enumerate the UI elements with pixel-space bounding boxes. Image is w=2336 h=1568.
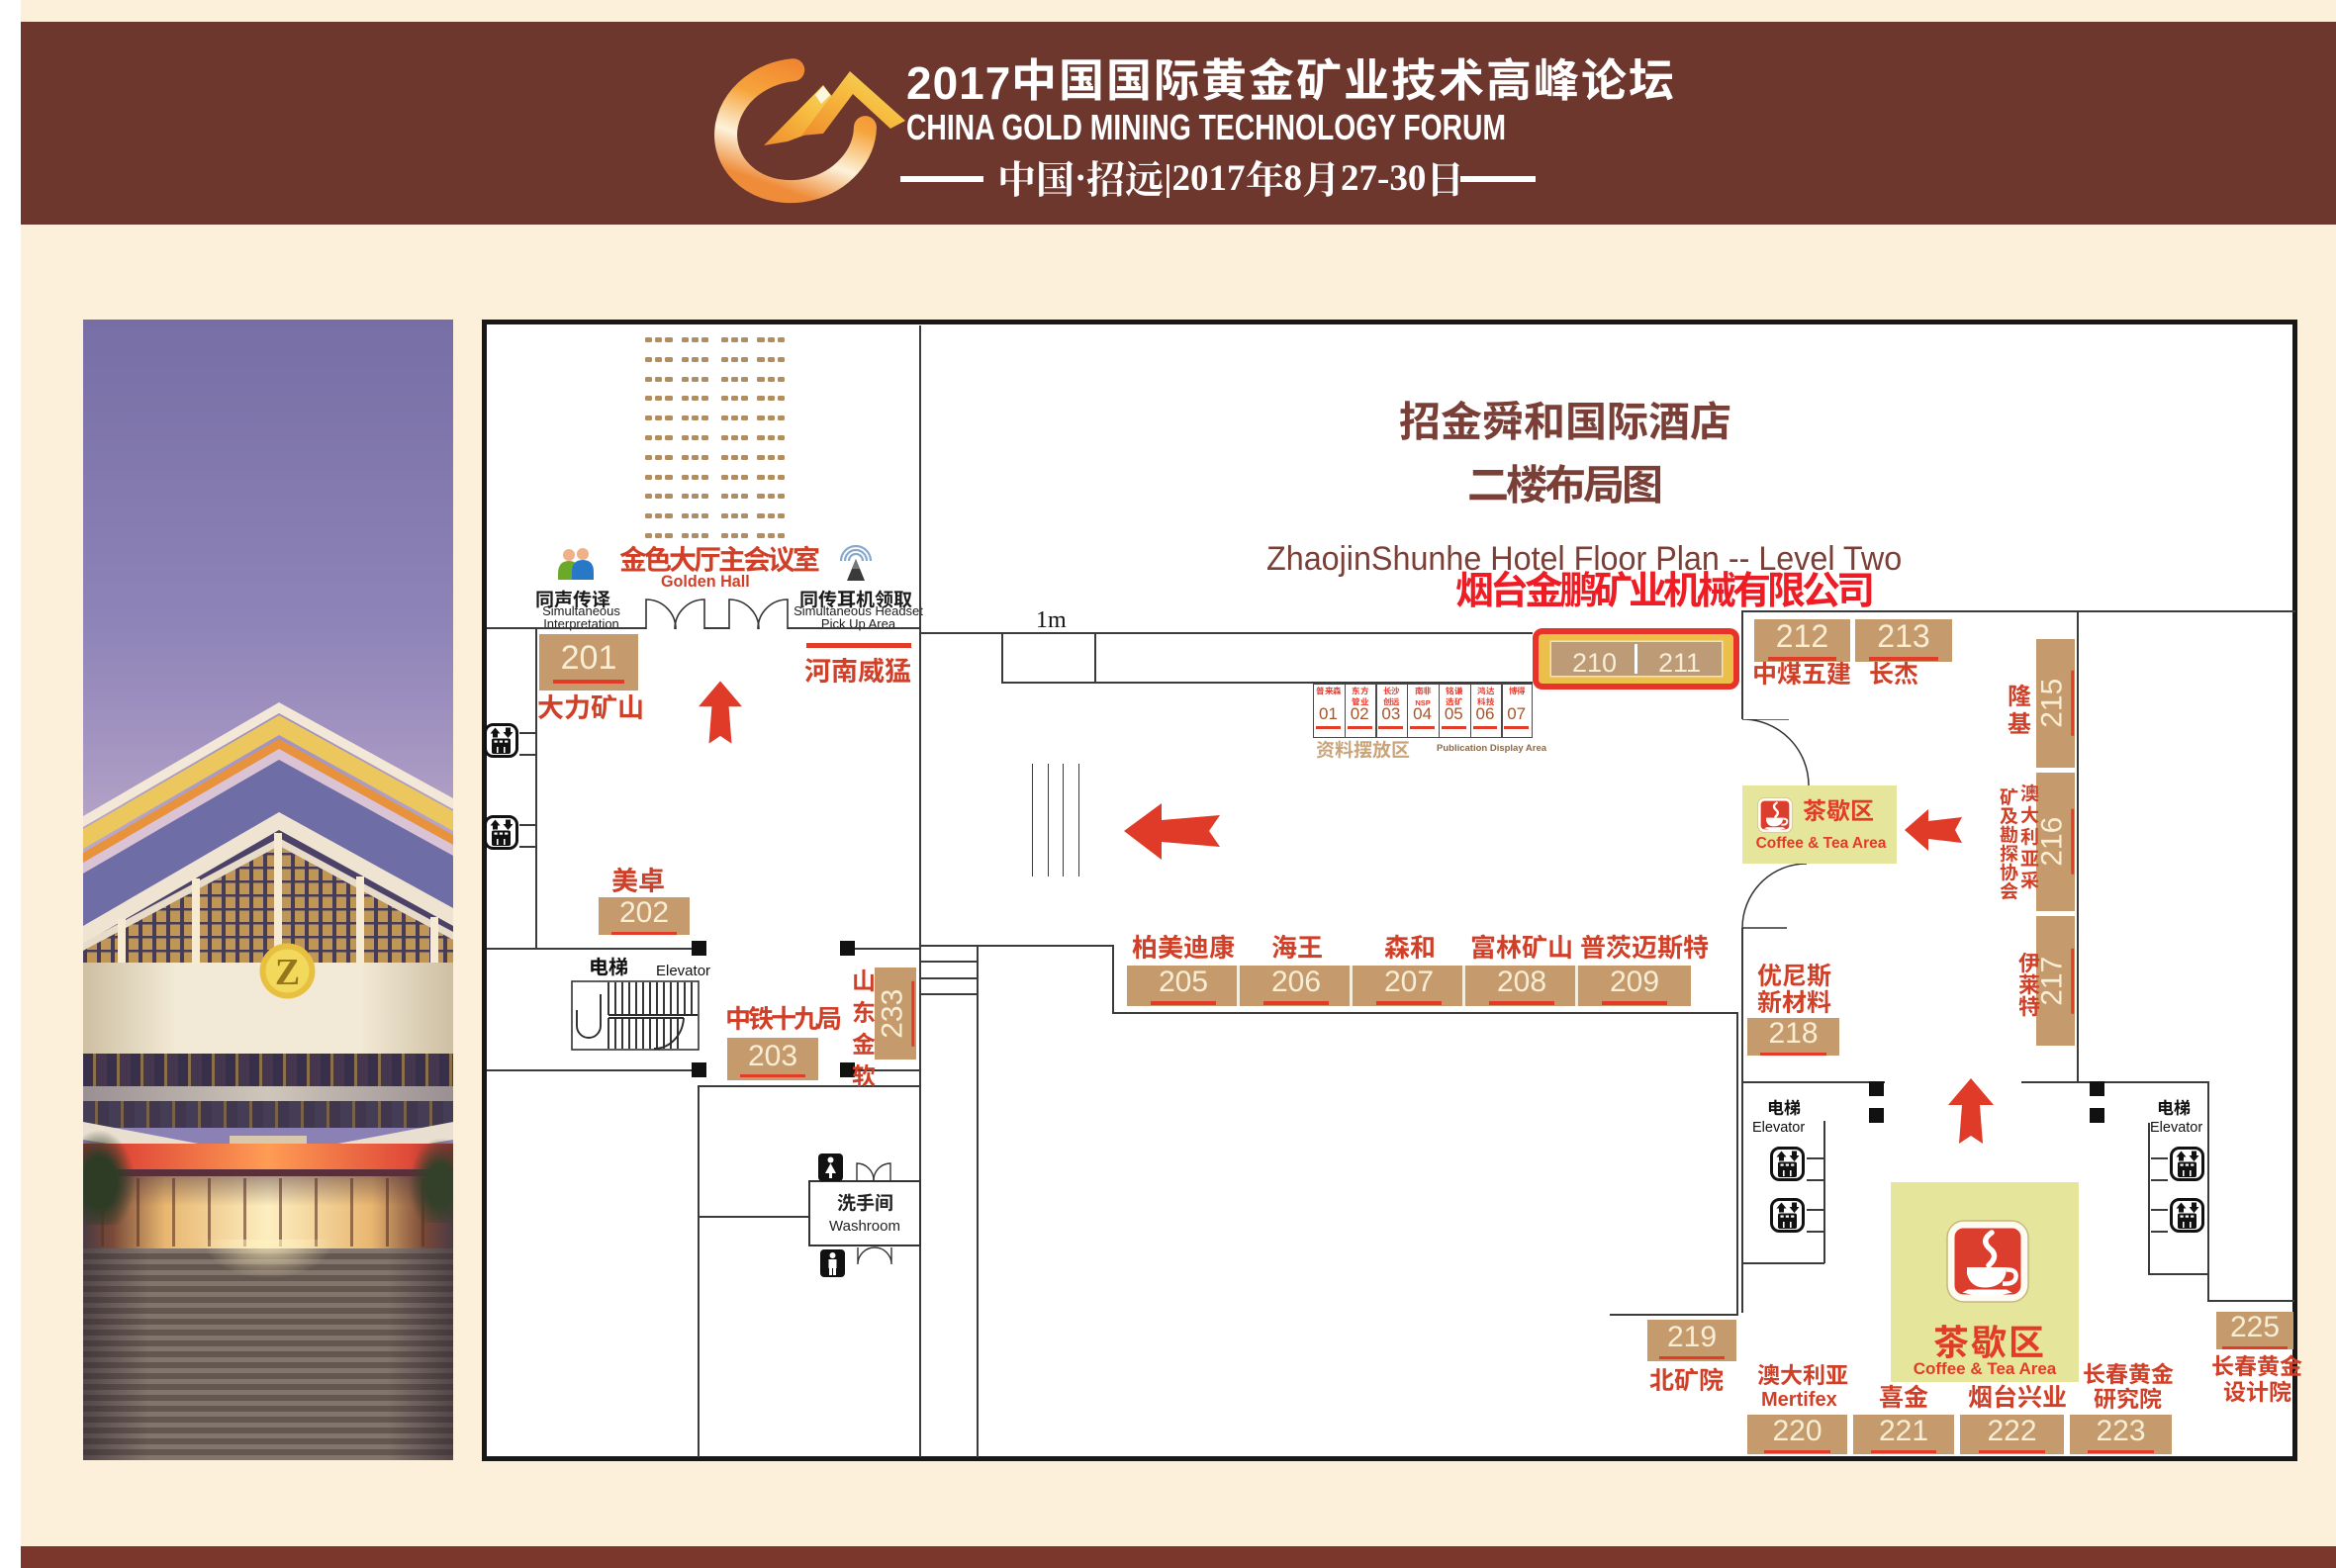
svg-text:Z: Z [275, 952, 300, 993]
